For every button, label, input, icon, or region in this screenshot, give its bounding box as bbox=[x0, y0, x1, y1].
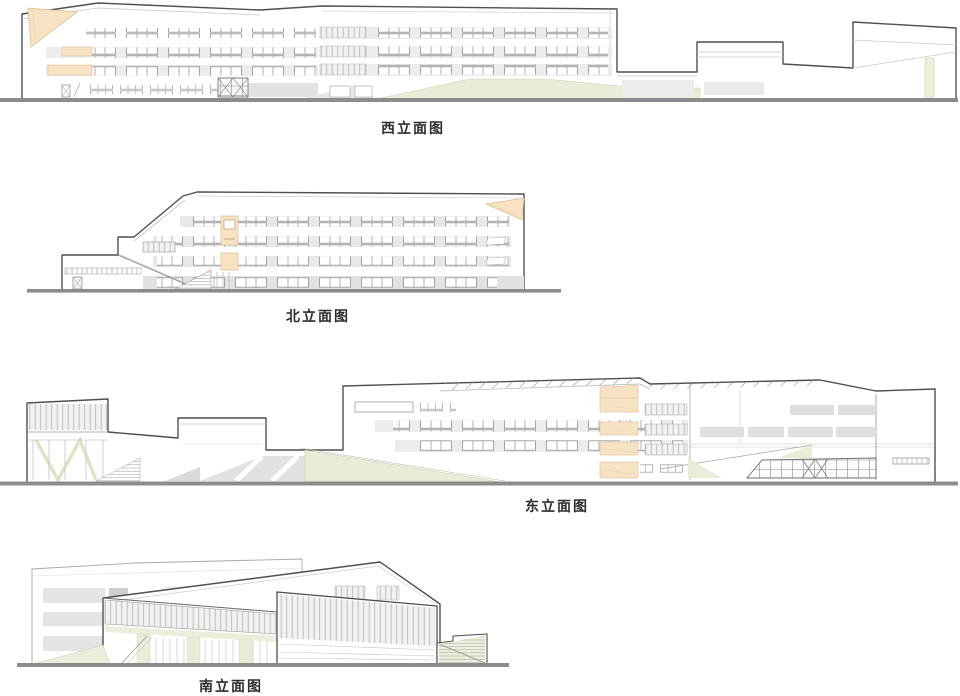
ground-line bbox=[0, 482, 958, 486]
ground-line bbox=[17, 663, 509, 667]
elevation-sheet: 西立面图 bbox=[0, 0, 960, 696]
north-elevation-drawing bbox=[25, 178, 565, 298]
east-building bbox=[27, 378, 935, 483]
louver-window bbox=[320, 27, 366, 38]
east-elevation-label: 东立面图 bbox=[525, 496, 589, 516]
peach-panel bbox=[221, 253, 238, 270]
annex-ramp bbox=[437, 634, 487, 664]
north-building bbox=[62, 192, 524, 290]
south-building bbox=[32, 559, 487, 664]
ground-line bbox=[0, 98, 958, 102]
peach-panel bbox=[62, 47, 92, 56]
louver-facade bbox=[29, 404, 107, 430]
louver-window bbox=[143, 242, 175, 252]
south-elevation-label: 南立面图 bbox=[199, 676, 263, 696]
entrance-curtain-wall bbox=[218, 78, 248, 97]
east-elevation-drawing bbox=[0, 374, 960, 489]
north-elevation-label: 北立面图 bbox=[286, 306, 350, 326]
west-elevation-label: 西立面图 bbox=[381, 118, 445, 138]
west-elevation-drawing bbox=[0, 0, 960, 112]
south-elevation-drawing bbox=[15, 546, 515, 672]
olive-strip bbox=[925, 58, 934, 97]
ground-line bbox=[27, 289, 561, 293]
peach-panels bbox=[600, 386, 638, 479]
west-building bbox=[22, 3, 956, 99]
peach-panel bbox=[48, 65, 92, 75]
